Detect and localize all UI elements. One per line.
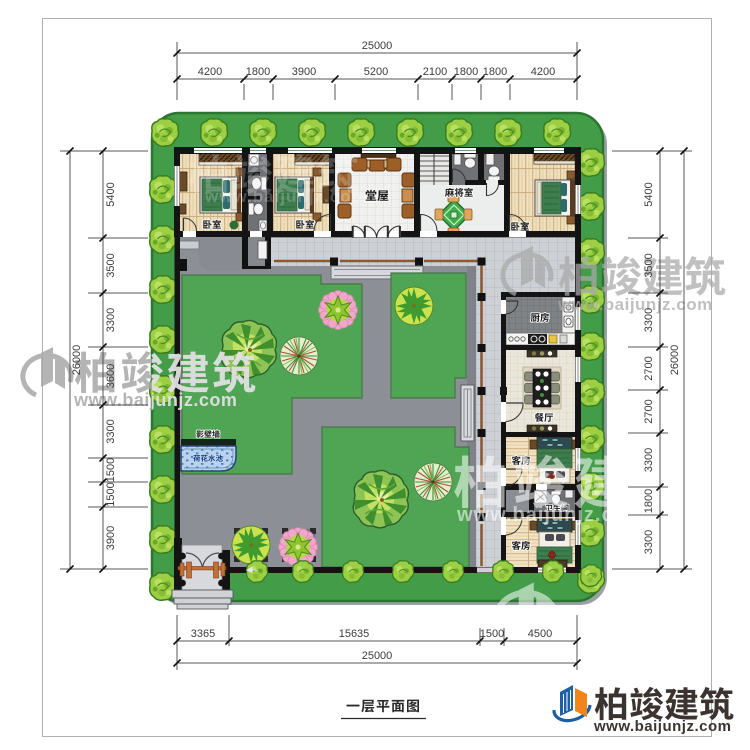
svg-text:3900: 3900	[105, 526, 117, 550]
svg-text:www.baijunjz.com: www.baijunjz.com	[593, 718, 731, 735]
svg-text:www.baijunjz.com: www.baijunjz.com	[456, 504, 646, 526]
svg-text:1800: 1800	[454, 66, 478, 78]
svg-text:4200: 4200	[198, 66, 222, 78]
svg-text:3500: 3500	[105, 253, 117, 277]
svg-text:3600: 3600	[105, 364, 117, 388]
svg-text:2100: 2100	[423, 66, 447, 78]
svg-text:3300: 3300	[105, 419, 117, 443]
svg-text:5400: 5400	[643, 182, 655, 206]
svg-text:1500: 1500	[480, 628, 504, 640]
svg-text:www.baijunjz.com: www.baijunjz.com	[204, 187, 368, 206]
svg-text:25000: 25000	[362, 40, 393, 52]
svg-text:4500: 4500	[528, 628, 552, 640]
svg-text:15635: 15635	[339, 628, 370, 640]
svg-text:5200: 5200	[364, 66, 388, 78]
svg-text:3300: 3300	[643, 530, 655, 554]
svg-text:25000: 25000	[362, 650, 393, 662]
svg-text:2700: 2700	[643, 356, 655, 380]
svg-text:3300: 3300	[643, 308, 655, 332]
svg-text:3900: 3900	[292, 66, 316, 78]
svg-text:1800: 1800	[643, 489, 655, 513]
svg-text:5400: 5400	[105, 182, 117, 206]
svg-text:1500: 1500	[105, 482, 117, 506]
svg-text:26000: 26000	[71, 345, 83, 376]
svg-text:3300: 3300	[643, 448, 655, 472]
svg-text:3300: 3300	[105, 308, 117, 332]
svg-text:1500: 1500	[105, 458, 117, 482]
svg-text:2700: 2700	[643, 399, 655, 423]
svg-text:3500: 3500	[643, 253, 655, 277]
svg-text:1800: 1800	[483, 66, 507, 78]
svg-text:3365: 3365	[191, 628, 215, 640]
svg-text:26000: 26000	[669, 345, 681, 376]
svg-text:www.baijunjz.com: www.baijunjz.com	[557, 295, 713, 314]
svg-text:1800: 1800	[246, 66, 270, 78]
svg-text:4200: 4200	[531, 66, 555, 78]
